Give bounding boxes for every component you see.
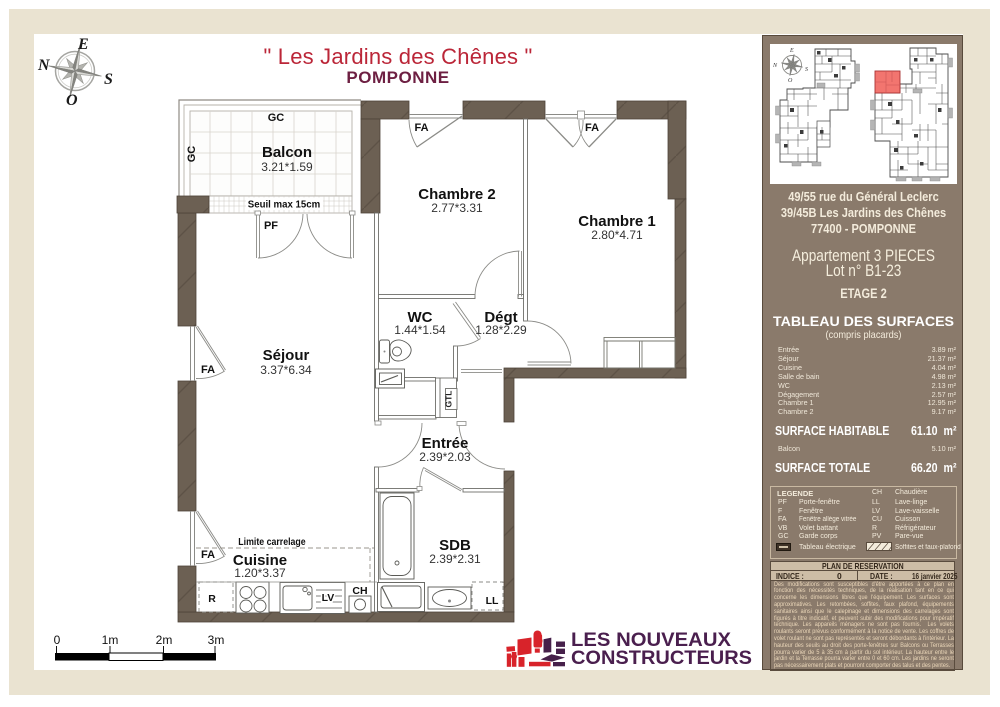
svg-text:GC: GC [268,112,285,124]
svg-text:PF: PF [264,220,278,232]
svg-text:2.39*2.31: 2.39*2.31 [429,552,481,566]
svg-text:N: N [772,63,778,69]
svg-text:N: N [37,57,51,74]
svg-text:1m: 1m [102,633,119,647]
svg-text:R: R [208,593,216,605]
svg-text:2.77*3.31: 2.77*3.31 [431,201,483,215]
svg-text:O: O [66,92,78,109]
svg-text:FA: FA [585,122,599,134]
svg-text:FA: FA [201,364,215,376]
svg-text:E: E [77,36,89,53]
svg-text:S: S [805,67,808,73]
svg-text:1.20*3.37: 1.20*3.37 [234,566,286,580]
svg-text:GC: GC [186,146,198,163]
svg-text:S: S [104,71,113,88]
svg-text:LL: LL [486,595,499,607]
svg-text:3.37*6.34: 3.37*6.34 [260,363,312,377]
svg-text:Séjour: Séjour [263,347,310,364]
svg-text:O: O [788,78,793,84]
svg-text:FA: FA [201,549,215,561]
svg-text:2.39*2.03: 2.39*2.03 [419,450,471,464]
svg-text:0: 0 [54,633,61,647]
svg-text:CH: CH [352,585,367,597]
svg-text:2.80*4.71: 2.80*4.71 [591,228,643,242]
svg-text:2m: 2m [156,633,173,647]
svg-text:Balcon: Balcon [262,144,312,161]
svg-text:CONSTRUCTEURS: CONSTRUCTEURS [571,647,752,669]
svg-text:FA: FA [414,122,428,134]
svg-text:GTL: GTL [444,391,454,408]
svg-text:1.28*2.29: 1.28*2.29 [475,323,527,337]
svg-text:3.21*1.59: 3.21*1.59 [261,160,313,174]
svg-text:Seuil max 15cm: Seuil max 15cm [248,199,320,210]
svg-text:3m: 3m [208,633,225,647]
svg-text:1.44*1.54: 1.44*1.54 [394,323,446,337]
svg-text:Limite carrelage: Limite carrelage [238,535,305,547]
svg-text:E: E [789,48,794,54]
svg-text:LV: LV [322,592,335,604]
